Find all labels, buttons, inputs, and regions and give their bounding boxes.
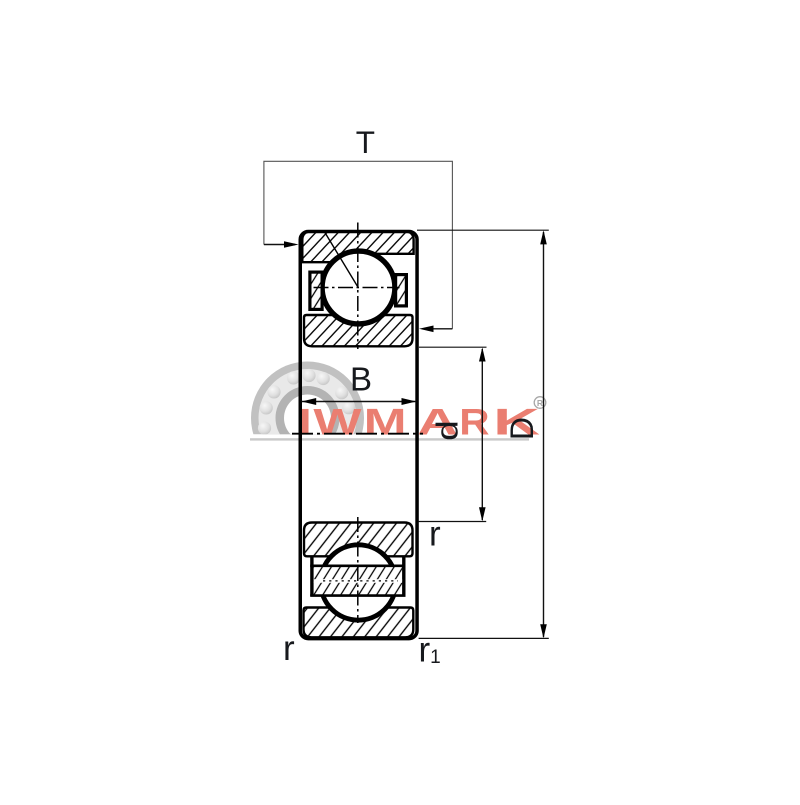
svg-text:T: T bbox=[356, 124, 375, 160]
svg-text:R: R bbox=[537, 398, 543, 408]
svg-text:B: B bbox=[350, 360, 372, 397]
svg-text:r: r bbox=[429, 515, 441, 554]
svg-text:d: d bbox=[430, 420, 464, 441]
svg-text:r: r bbox=[283, 629, 295, 668]
svg-text:D: D bbox=[504, 417, 540, 440]
svg-text:M: M bbox=[364, 400, 407, 442]
svg-text:W: W bbox=[313, 401, 362, 443]
